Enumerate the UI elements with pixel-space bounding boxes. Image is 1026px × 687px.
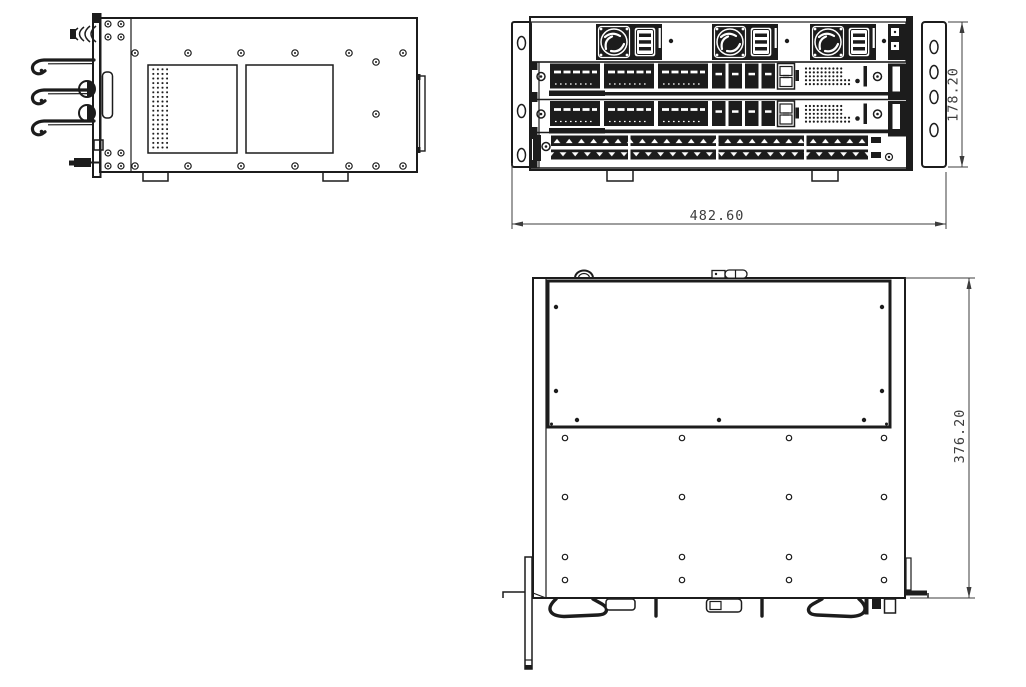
- handle-bracket: [606, 599, 635, 610]
- latch-icon: [712, 270, 747, 278]
- dimension-label-width: 482.60: [690, 208, 745, 224]
- psu-screw: [882, 39, 886, 43]
- ground-connector-module: [888, 24, 906, 60]
- side-screw-holes: [132, 50, 406, 169]
- mount-bracket-left: [503, 557, 546, 669]
- top-screw-holes: [562, 435, 886, 582]
- chassis-foot: [323, 172, 348, 181]
- vent-tray-card: [533, 135, 893, 161]
- side-vent-perforation: [151, 67, 168, 151]
- chassis-foot: [143, 172, 168, 181]
- dimension-label-height: 178.20: [946, 67, 962, 122]
- chassis-foot: [812, 170, 838, 181]
- engineering-drawing: 482.60 178.20: [0, 0, 1026, 687]
- side-view: [32, 14, 425, 181]
- cover-screws: [550, 305, 888, 426]
- dimension-label-depth: 376.20: [952, 409, 968, 464]
- power-plug-icon: [69, 158, 100, 167]
- chassis-foot: [607, 170, 633, 181]
- front-view: 482.60 178.20: [512, 17, 968, 229]
- rack-ear-left: [512, 22, 531, 167]
- mount-bracket-right: [905, 558, 928, 598]
- rack-ear-right: [922, 22, 946, 167]
- dimension-depth: 376.20: [905, 278, 975, 598]
- top-view: 376.20: [503, 270, 975, 669]
- technical-drawing-canvas: 482.60 178.20: [0, 0, 1026, 687]
- panel-screws: [105, 21, 124, 169]
- dimension-height: 178.20: [946, 22, 969, 167]
- thumbscrew-icon: [575, 271, 593, 278]
- psu-screw: [669, 39, 673, 43]
- top-access-cover: [548, 281, 890, 427]
- front-handle-icon: [550, 599, 607, 617]
- side-cutout-right: [246, 65, 333, 153]
- top-body: [533, 278, 905, 598]
- center-latch: [707, 599, 742, 612]
- side-label-plate: [103, 72, 113, 118]
- psu-screw: [785, 39, 789, 43]
- dimension-width: 482.60: [512, 163, 946, 229]
- front-handle-icon: [808, 599, 865, 617]
